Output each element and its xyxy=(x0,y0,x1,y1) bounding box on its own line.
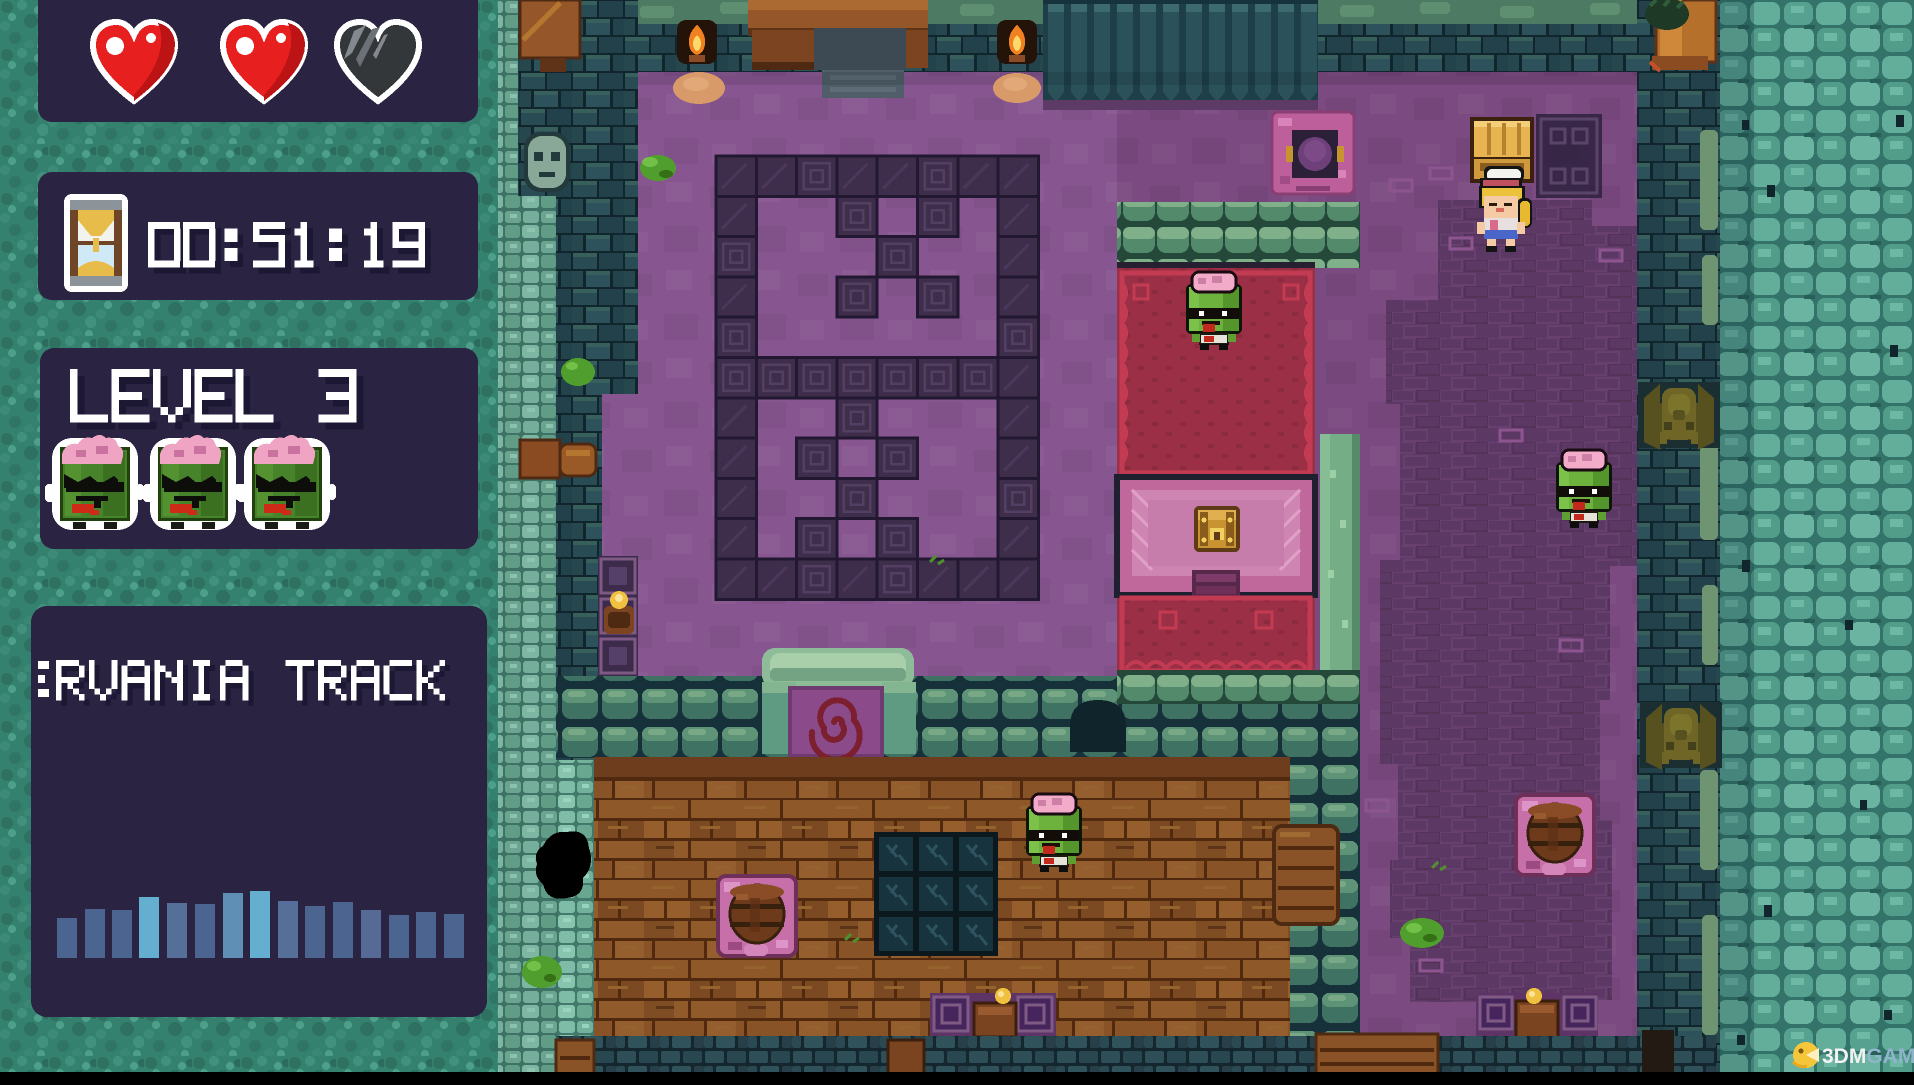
svg-text:3DMGAME: 3DMGAME xyxy=(1822,1045,1914,1068)
